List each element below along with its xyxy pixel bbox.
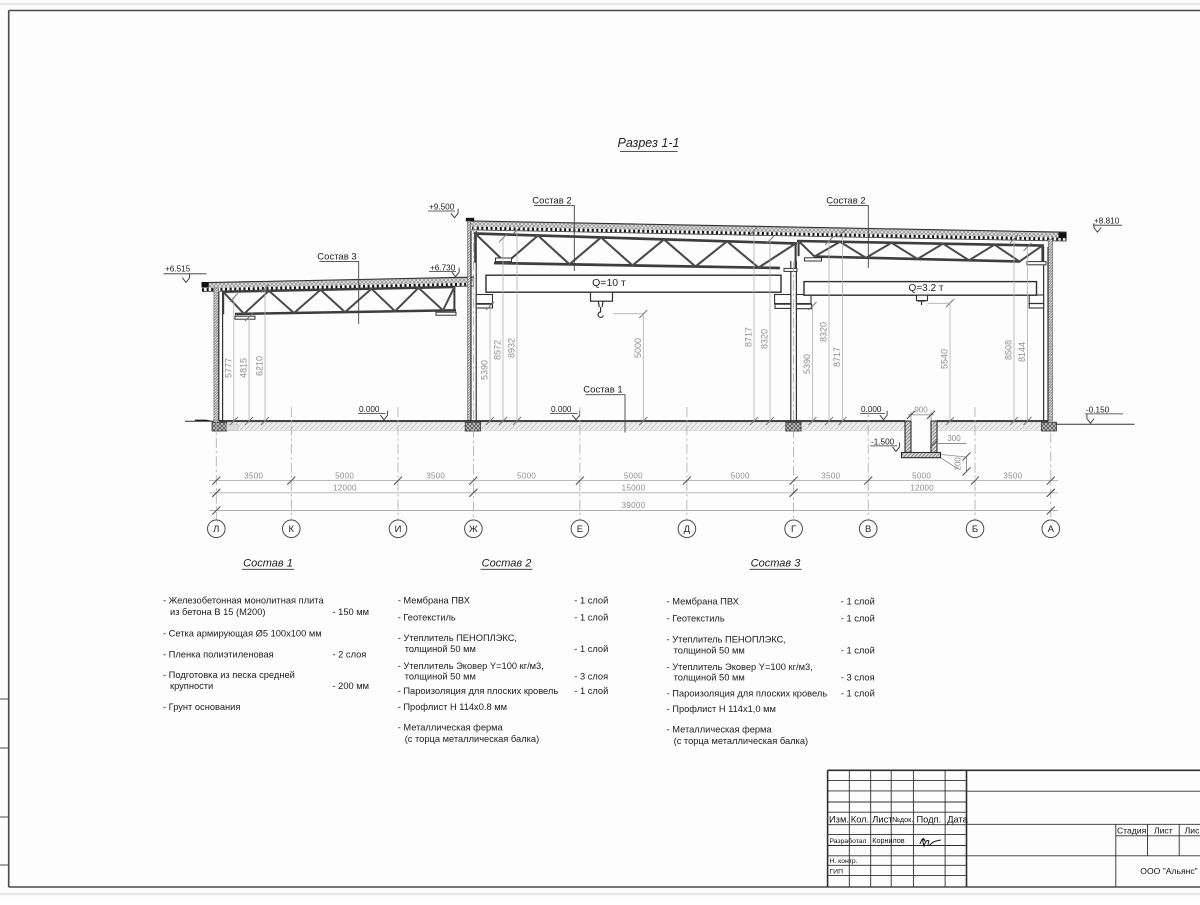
svg-text:- Пароизоляция для плоских кро: - Пароизоляция для плоских кровель [667, 688, 828, 698]
svg-text:5000: 5000 [731, 471, 750, 480]
svg-text:- Профлист Н 114х1,0 мм: - Профлист Н 114х1,0 мм [667, 704, 776, 714]
svg-text:0.000: 0.000 [861, 405, 882, 414]
svg-text:- 2 слоя: - 2 слоя [333, 649, 367, 659]
svg-text:из бетона В 15 (М200): из бетона В 15 (М200) [170, 607, 266, 617]
svg-text:- Грунт основания: - Грунт основания [163, 702, 240, 712]
svg-text:+9.500: +9.500 [429, 203, 455, 212]
svg-text:15000: 15000 [622, 484, 646, 493]
svg-text:толщиной 50 мм: толщиной 50 мм [674, 672, 745, 682]
svg-text:-1.500: -1.500 [871, 437, 895, 446]
svg-text:5000: 5000 [517, 471, 536, 480]
svg-text:- Геотекстиль: - Геотекстиль [398, 613, 456, 623]
svg-text:- Утеплитель ПЕНОПЛЭКС,: - Утеплитель ПЕНОПЛЭКС, [398, 633, 517, 643]
svg-text:- Мембрана ПВХ: - Мембрана ПВХ [398, 596, 470, 606]
svg-text:5390: 5390 [802, 354, 812, 374]
svg-text:- 1 слой: - 1 слой [574, 686, 608, 696]
svg-text:- Пароизоляция для плоских кро: - Пароизоляция для плоских кровель [398, 686, 559, 696]
svg-text:300: 300 [947, 434, 961, 443]
svg-text:№док.: №док. [892, 815, 913, 824]
svg-text:Q=10 т: Q=10 т [592, 277, 626, 289]
svg-text:5000: 5000 [624, 471, 643, 480]
svg-text:5777: 5777 [223, 358, 233, 378]
svg-text:8320: 8320 [760, 329, 770, 349]
svg-text:- 1 слой: - 1 слой [841, 614, 875, 624]
svg-text:8572: 8572 [493, 340, 503, 360]
svg-text:- 200 мм: - 200 мм [333, 681, 370, 691]
svg-text:- 3 слоя: - 3 слоя [841, 672, 875, 682]
svg-text:(с торца металлическая балка): (с торца металлическая балка) [405, 734, 540, 744]
svg-text:- 1 слой: - 1 слой [574, 644, 608, 654]
svg-text:Стадия: Стадия [1117, 826, 1147, 836]
svg-text:- 150 мм: - 150 мм [333, 607, 370, 617]
svg-text:В: В [865, 524, 871, 535]
svg-text:4815: 4815 [239, 358, 249, 378]
svg-text:0.000: 0.000 [551, 405, 572, 414]
svg-text:Подп.: Подп. [917, 814, 942, 824]
svg-text:8932: 8932 [507, 338, 517, 358]
svg-text:Е: Е [577, 524, 583, 535]
svg-text:Разработал: Разработал [830, 837, 867, 845]
svg-text:0.000: 0.000 [359, 405, 380, 414]
svg-text:Состав 1: Состав 1 [583, 384, 622, 395]
svg-text:толщиной 50 мм: толщиной 50 мм [405, 644, 476, 654]
svg-text:крупности: крупности [170, 681, 213, 691]
svg-text:Д: Д [684, 524, 691, 535]
svg-text:Г: Г [791, 524, 796, 535]
svg-text:6210: 6210 [255, 356, 265, 376]
svg-text:Лист: Лист [872, 814, 893, 824]
svg-text:- 1 слой: - 1 слой [841, 645, 875, 655]
svg-text:+8.810: +8.810 [1094, 217, 1120, 226]
svg-text:- Утеплитель ПЕНОПЛЭКС,: - Утеплитель ПЕНОПЛЭКС, [667, 635, 786, 645]
svg-text:толщиной 50 мм: толщиной 50 мм [674, 645, 745, 655]
svg-text:(с торца металлическая балка): (с торца металлическая балка) [674, 736, 809, 746]
svg-text:И: И [395, 524, 402, 535]
svg-text:3500: 3500 [1003, 471, 1022, 480]
svg-text:Дата: Дата [947, 814, 968, 824]
svg-text:ООО "Альянс": ООО "Альянс" [1140, 866, 1197, 876]
svg-text:3500: 3500 [426, 471, 445, 480]
svg-text:Л: Л [213, 524, 219, 535]
svg-text:К: К [289, 524, 295, 535]
svg-text:- 1 слой: - 1 слой [841, 688, 875, 698]
svg-text:ГИП: ГИП [830, 868, 844, 875]
svg-text:- 1 слой: - 1 слой [841, 596, 875, 606]
svg-text:Лис: Лис [1185, 826, 1200, 836]
svg-text:12000: 12000 [910, 484, 934, 493]
svg-text:3500: 3500 [244, 471, 263, 480]
svg-text:5390: 5390 [480, 360, 490, 380]
svg-text:900: 900 [914, 405, 928, 414]
svg-text:Состав 2: Состав 2 [482, 558, 532, 570]
svg-text:- Металлическая ферма: - Металлическая ферма [667, 724, 773, 734]
svg-text:толщиной 50 мм: толщиной 50 мм [405, 671, 476, 681]
svg-text:12000: 12000 [333, 484, 357, 493]
svg-text:Корнилов: Корнилов [872, 836, 904, 845]
svg-text:Состав 3: Состав 3 [751, 558, 802, 570]
svg-text:- Мембрана ПВХ: - Мембрана ПВХ [667, 596, 739, 606]
svg-text:5000: 5000 [912, 471, 931, 480]
svg-text:Лист: Лист [1154, 826, 1173, 836]
svg-text:8717: 8717 [832, 347, 842, 367]
svg-text:8717: 8717 [744, 327, 754, 347]
svg-text:5000: 5000 [335, 471, 354, 480]
svg-text:+6.730: +6.730 [430, 263, 456, 272]
svg-text:А: А [1048, 524, 1055, 535]
svg-text:- 1 слой: - 1 слой [574, 613, 608, 623]
svg-text:Кол.: Кол. [851, 814, 869, 824]
svg-text:- Геотекстиль: - Геотекстиль [667, 614, 725, 624]
svg-text:Q=3.2 т: Q=3.2 т [909, 283, 944, 294]
svg-text:Разрез 1-1: Разрез 1-1 [618, 136, 680, 150]
svg-text:- Пленка полиэтиленовая: - Пленка полиэтиленовая [163, 649, 274, 659]
svg-text:8508: 8508 [1004, 340, 1014, 360]
svg-text:5000: 5000 [633, 338, 643, 358]
svg-text:- Железобетонная монолитная п: - Железобетонная монолитная плита [163, 596, 324, 606]
svg-text:Состав 2: Состав 2 [826, 196, 865, 207]
svg-text:3500: 3500 [821, 471, 840, 480]
svg-text:- Утеплитель Эковер Y=100 кг/м: - Утеплитель Эковер Y=100 кг/м3, [398, 661, 544, 671]
svg-text:- Подготовка из песка средней: - Подготовка из песка средней [163, 670, 295, 680]
svg-text:-0.150: -0.150 [1086, 405, 1110, 414]
svg-text:Состав 3: Состав 3 [317, 252, 356, 263]
svg-text:- Сетка армирующая Ø5 100х100: - Сетка армирующая Ø5 100х100 мм [163, 629, 322, 639]
svg-text:Изм.: Изм. [829, 814, 849, 824]
svg-text:Ж: Ж [469, 524, 478, 535]
svg-text:- Профлист Н 114х0.8 мм: - Профлист Н 114х0.8 мм [398, 702, 507, 712]
svg-text:Б: Б [972, 524, 978, 535]
svg-text:- 1 слой: - 1 слой [574, 596, 608, 606]
svg-text:8144: 8144 [1017, 342, 1027, 362]
svg-text:Состав 2: Состав 2 [532, 196, 571, 207]
svg-text:200: 200 [954, 457, 963, 471]
svg-text:8320: 8320 [819, 322, 829, 342]
svg-text:- Металлическая ферма: - Металлическая ферма [398, 723, 504, 733]
svg-text:Н. контр.: Н. контр. [830, 858, 858, 865]
svg-text:Состав 1: Состав 1 [243, 558, 293, 570]
svg-text:- 3 слоя: - 3 слоя [574, 671, 608, 681]
svg-text:5540: 5540 [940, 349, 950, 369]
svg-text:39000: 39000 [622, 501, 646, 510]
svg-text:+6.515: +6.515 [165, 265, 191, 274]
svg-text:- Утеплитель Эковер Y=100 кг/м: - Утеплитель Эковер Y=100 кг/м3, [667, 662, 813, 672]
